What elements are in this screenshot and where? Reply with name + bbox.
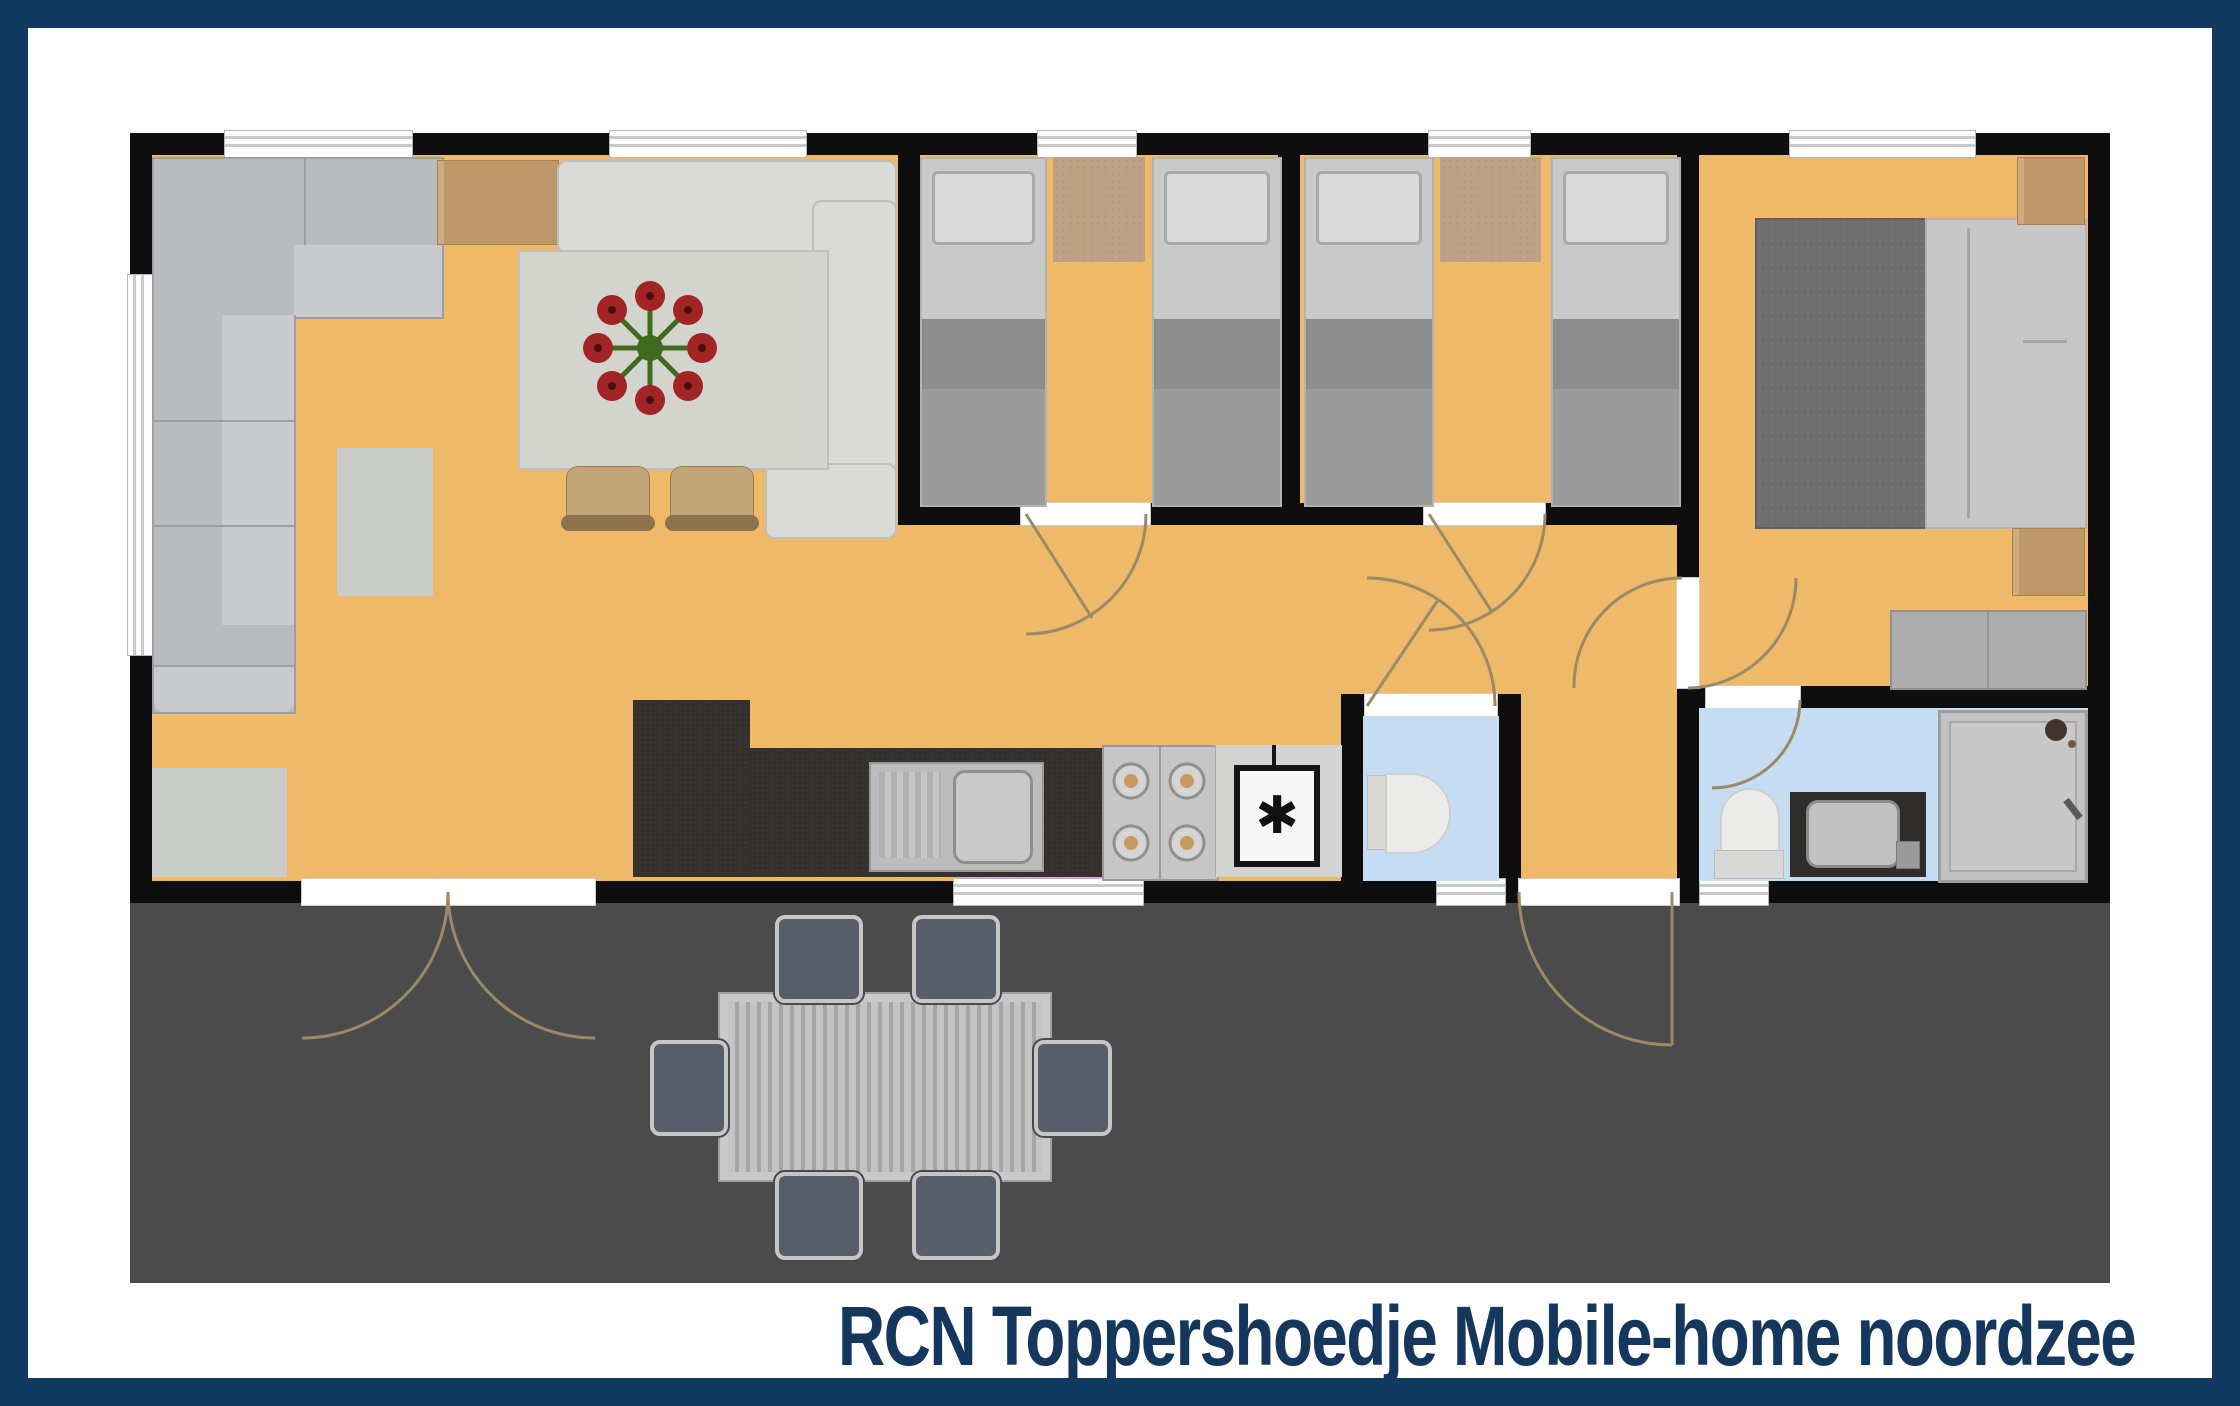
sofa-cushion-seam [154,420,294,422]
dining-stool-right [670,466,754,526]
outdoor-chair-right [1034,1040,1112,1136]
window-bedroom1-top [1038,131,1136,157]
window-toilet-bottom [1437,879,1505,905]
bedroom2-bed-left [1304,157,1434,507]
blanket-fold [922,319,1045,389]
bedroom1-bed-right [1152,157,1282,507]
master-nightstand-bottom [2012,528,2085,596]
frame-right [2212,0,2240,1406]
bed-blanket [1553,319,1679,505]
stove-divider [1159,747,1161,879]
sofa-cushion-seam [304,159,306,245]
kitchen-counter-tall [633,700,750,877]
bed-blanket [1154,319,1280,505]
bedroom1-bed-left [920,157,1047,507]
deck-terrace [130,903,2110,1283]
bedroom1-rug [1053,157,1145,262]
window-kitchen-bottom [954,879,1143,905]
pillow-crease [1967,228,1970,519]
dining-bench-corner [765,463,897,539]
master-bed-pillows [1925,218,2087,529]
wardrobe-seam [1987,612,1989,688]
bed-pillow [1316,171,1422,245]
bathroom-toilet-bowl [1720,788,1780,858]
bathroom-vanity [1790,792,1926,877]
wall-exterior-right [2088,133,2110,903]
window-living-left [128,275,154,655]
vanity-soap-tray [1896,841,1920,869]
frame-top [0,0,2240,28]
blanket-fold [1306,319,1432,389]
blanket-fold [1553,319,1679,389]
table-slats [728,1002,1042,1172]
plan-title: RCN Toppershoedje Mobile-home noordzee [838,1288,2135,1385]
kitchen-sink-unit [869,762,1044,872]
dining-table [518,250,829,470]
fridge-freezer: ✱ [1234,765,1320,867]
toilet-tank [1367,775,1387,850]
sideboard-console [437,160,559,245]
bed-pillow [932,171,1035,245]
door-opening-bedroom2 [1424,503,1545,525]
master-nightstand-top [2017,157,2085,225]
vanity-washbasin [1806,800,1900,868]
outdoor-chair-bottom-left [775,1172,863,1260]
bed-pillow [1164,171,1270,245]
bedroom2-rug [1440,157,1541,262]
freezer-icon: ✱ [1255,786,1299,846]
stool-base [665,515,759,531]
master-wardrobe [1890,610,2087,690]
door-opening-toilet [1365,694,1497,716]
wall-toilet-right [1499,694,1521,903]
bed-blanket [922,319,1045,505]
pillow-crease [2023,340,2067,343]
door-opening-master [1677,578,1699,688]
window-dining-top [610,131,806,157]
outdoor-chair-top-left [775,915,863,1003]
window-bathroom-bottom [1700,879,1768,905]
wall-toilet-left [1341,694,1363,903]
shower-tray [1938,710,2088,883]
dining-stool-left [566,466,650,526]
master-bed-blanket [1755,218,1929,529]
sink-drainer [879,772,941,858]
corner-sofa-top-section [152,157,444,319]
stove-cooktop [1102,745,1219,881]
bedroom2-bed-right [1551,157,1681,507]
sink-basin [953,770,1033,864]
bed-pillow [1563,171,1669,245]
sofa-cushion-seam [154,525,294,527]
blanket-fold [1154,319,1280,389]
frame-left [0,0,28,1406]
sofa-seat-cushion [294,245,442,317]
outdoor-chair-bottom-right [912,1172,1000,1260]
bed-blanket [1306,319,1432,505]
door-opening-single-deck [1519,879,1679,905]
living-rug-small [337,448,433,596]
wall-master-bathroom-lower [1677,688,1699,903]
window-bedroom2-top [1429,131,1530,157]
outdoor-chair-top-right [912,915,1000,1003]
sofa-seat-cushion [222,315,294,625]
corner-sofa-left-section [152,315,296,714]
living-rug-corner [152,768,287,877]
wall-living-bedroom1 [898,133,920,525]
door-opening-bathroom [1706,686,1800,708]
bathroom-toilet-tank [1714,850,1784,879]
window-master-top [1790,131,1975,157]
stool-base [561,515,655,531]
fridge-handle [1272,745,1276,765]
outdoor-chair-left [650,1040,728,1136]
door-opening-french-deck [302,879,595,905]
outdoor-dining-table [720,994,1050,1180]
sofa-armrest [154,665,294,712]
window-living-top [225,131,412,157]
floorplan-image: ✱ [0,0,2240,1406]
